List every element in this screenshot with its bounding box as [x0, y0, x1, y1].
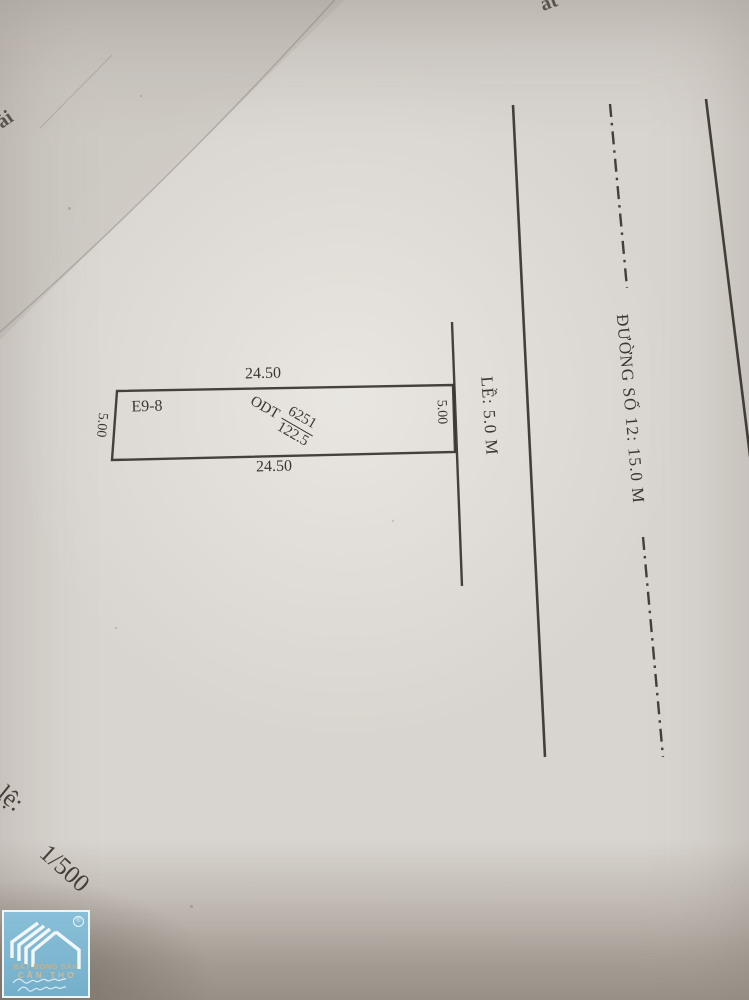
registered-trademark-icon: ® [73, 916, 84, 927]
land-use-code: ODT [247, 393, 282, 423]
dimension-bottom: 24.50 [256, 458, 292, 477]
dimension-right: 5.00 [433, 399, 450, 424]
logo-name-line1: BẤT ĐỘNG SẢN [4, 962, 88, 971]
paper-crease-line [0, 0, 340, 332]
sidewalk-edge-line [452, 322, 462, 586]
road-centerline-upper [610, 104, 627, 288]
paper-crease-line-small [40, 55, 112, 128]
logo-name-line2: CẦN THƠ [4, 971, 88, 980]
road-far-edge-line [706, 99, 749, 472]
realestate-watermark-logo: ® BẤT ĐỘNG SẢN CẦN THƠ [2, 910, 90, 998]
plot-id-label: E9-8 [131, 397, 163, 416]
logo-slogan-script [18, 987, 66, 991]
dimension-top: 24.50 [245, 365, 281, 384]
land-plot-survey-photo: 24.50 24.50 5.00 5.00 E9-8 ODT 6251 122.… [0, 0, 749, 1000]
road-centerline-lower [643, 537, 663, 757]
road-near-edge-line [513, 105, 545, 757]
dimension-left: 5.00 [92, 412, 110, 438]
